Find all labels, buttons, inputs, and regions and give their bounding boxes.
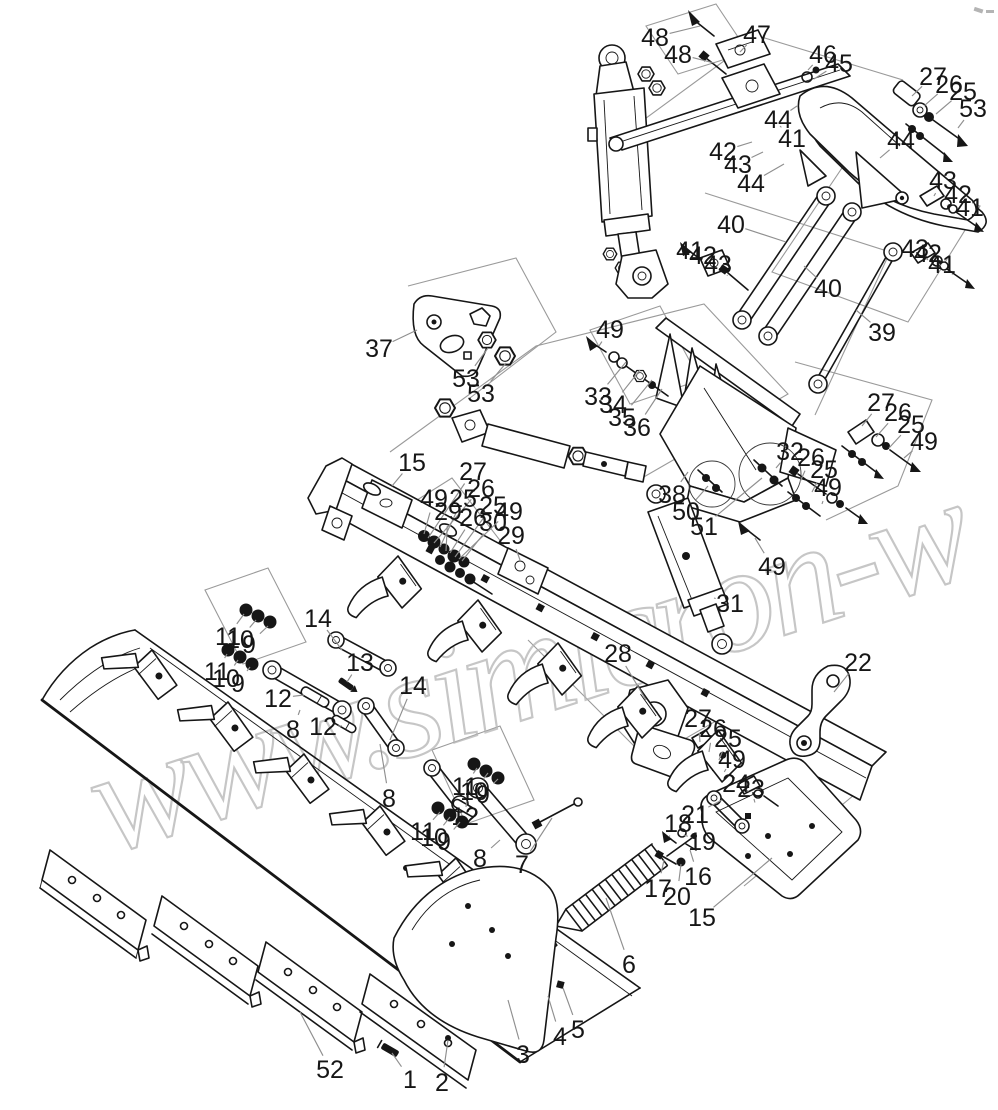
part-callout-49: 49 bbox=[814, 474, 842, 502]
part-callout-2: 2 bbox=[435, 1069, 449, 1097]
part-callout-21: 21 bbox=[681, 801, 709, 829]
part-callout-37: 37 bbox=[365, 335, 393, 363]
part-callout-16: 16 bbox=[684, 863, 712, 891]
part-callout-12: 12 bbox=[264, 685, 292, 713]
callout-leader-9 bbox=[260, 626, 268, 634]
part-callout-6: 6 bbox=[622, 951, 636, 979]
part-callout-43: 43 bbox=[704, 251, 732, 279]
part-callout-44: 44 bbox=[737, 170, 765, 198]
part-callout-29: 29 bbox=[497, 522, 525, 550]
part-callout-41: 41 bbox=[956, 194, 984, 222]
part-callout-14: 14 bbox=[399, 672, 427, 700]
part-callout-53: 53 bbox=[467, 380, 495, 408]
part-callout-5: 5 bbox=[571, 1016, 585, 1044]
part-callout-47: 47 bbox=[743, 21, 771, 49]
part-callout-52: 52 bbox=[316, 1056, 344, 1084]
part-callout-23: 23 bbox=[737, 775, 765, 803]
part-callout-49: 49 bbox=[910, 428, 938, 456]
callout-leader-20 bbox=[679, 864, 681, 881]
part-callout-29: 29 bbox=[434, 498, 462, 526]
part-callout-8: 8 bbox=[286, 716, 300, 744]
callout-leader-42 bbox=[737, 142, 752, 147]
part-callout-7: 7 bbox=[515, 851, 529, 879]
part-callout-41: 41 bbox=[778, 125, 806, 153]
lift-cylinder bbox=[588, 45, 668, 298]
part-callout-15: 15 bbox=[398, 449, 426, 477]
part-callout-28: 28 bbox=[604, 640, 632, 668]
part-callout-49: 49 bbox=[758, 553, 786, 581]
part-callout-14: 14 bbox=[304, 605, 332, 633]
part-callout-12: 12 bbox=[309, 713, 337, 741]
callout-leader-35 bbox=[631, 380, 652, 405]
part-callout-1: 1 bbox=[403, 1066, 417, 1094]
part-callout-53: 53 bbox=[959, 95, 987, 123]
callout-leader-43 bbox=[752, 152, 764, 158]
part-callout-9: 9 bbox=[242, 631, 256, 659]
watermark-fragment bbox=[974, 7, 994, 14]
callout-leader-52 bbox=[300, 1012, 323, 1056]
callout-leader-37 bbox=[393, 330, 417, 342]
callout-leader-48 bbox=[670, 26, 700, 33]
part-callout-51: 51 bbox=[690, 513, 718, 541]
part-callout-9: 9 bbox=[231, 670, 245, 698]
part-callout-41: 41 bbox=[928, 251, 956, 279]
part-callout-3: 3 bbox=[516, 1041, 530, 1069]
part-callout-49: 49 bbox=[596, 316, 624, 344]
callout-leader-17 bbox=[661, 860, 664, 873]
part-callout-4: 4 bbox=[553, 1023, 567, 1051]
part-callout-15: 15 bbox=[688, 904, 716, 932]
part-callout-40: 40 bbox=[717, 211, 745, 239]
part-callout-44: 44 bbox=[887, 127, 915, 155]
part-callout-22: 22 bbox=[844, 649, 872, 677]
part-callout-8: 8 bbox=[382, 785, 396, 813]
exploded-parts-diagram: www.simicron-w bbox=[0, 0, 998, 1110]
part-callout-13: 13 bbox=[346, 649, 374, 677]
part-callout-48: 48 bbox=[664, 41, 692, 69]
callout-leader-4 bbox=[548, 996, 556, 1022]
callout-leader-44 bbox=[764, 164, 784, 176]
part-callout-40: 40 bbox=[814, 275, 842, 303]
part-callout-39: 39 bbox=[868, 319, 896, 347]
callout-leader-36 bbox=[645, 389, 662, 415]
part-callout-36: 36 bbox=[623, 414, 651, 442]
part-callout-9: 9 bbox=[437, 828, 451, 856]
part-callout-19: 19 bbox=[688, 828, 716, 856]
parts-diagram-page: www.simicron-w bbox=[0, 0, 998, 1110]
part-callout-31: 31 bbox=[716, 590, 744, 618]
part-callout-45: 45 bbox=[825, 50, 853, 78]
callout-leader-40 bbox=[745, 229, 786, 242]
callout-leader-5 bbox=[563, 988, 573, 1015]
callout-leader-8 bbox=[491, 840, 500, 848]
part-callout-8: 8 bbox=[473, 845, 487, 873]
